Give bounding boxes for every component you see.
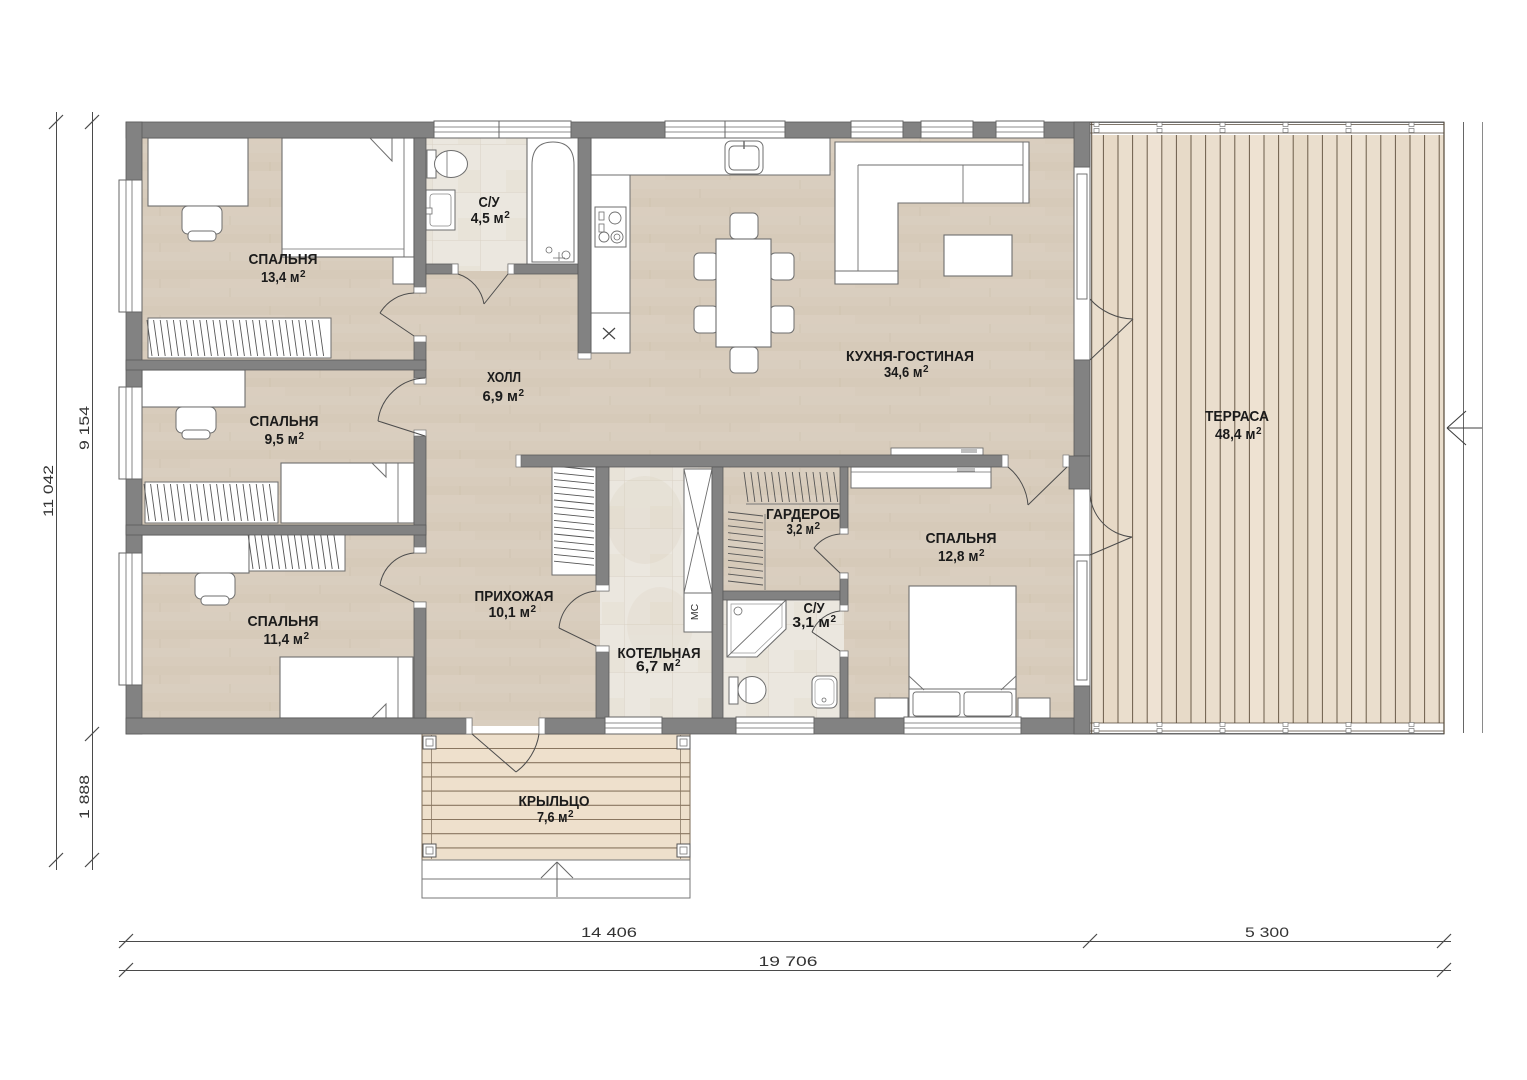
svg-text:9 154: 9 154 <box>76 406 92 450</box>
svg-text:10,1 м: 10,1 м <box>488 604 530 621</box>
svg-text:9,5 м: 9,5 м <box>264 431 298 448</box>
svg-text:2: 2 <box>815 521 821 532</box>
svg-text:СПАЛЬНЯ: СПАЛЬНЯ <box>926 530 997 547</box>
svg-text:4,5 м: 4,5 м <box>471 210 504 227</box>
svg-text:48,4 м: 48,4 м <box>1215 426 1256 443</box>
svg-text:2: 2 <box>304 631 310 642</box>
svg-text:2: 2 <box>831 614 837 625</box>
svg-text:2: 2 <box>531 604 537 615</box>
svg-text:7,6 м: 7,6 м <box>537 809 568 826</box>
svg-text:2: 2 <box>299 431 305 442</box>
svg-text:ТЕРРАСА: ТЕРРАСА <box>1205 408 1269 425</box>
svg-text:2: 2 <box>519 388 525 399</box>
svg-text:2: 2 <box>568 809 574 820</box>
svg-text:СПАЛЬНЯ: СПАЛЬНЯ <box>249 251 318 268</box>
svg-text:2: 2 <box>1256 426 1262 437</box>
svg-text:3,2 м: 3,2 м <box>786 521 814 538</box>
svg-text:2: 2 <box>675 658 681 669</box>
svg-text:3,1 м: 3,1 м <box>792 614 830 631</box>
svg-text:2: 2 <box>923 364 929 375</box>
svg-text:19 706: 19 706 <box>759 953 818 969</box>
svg-text:ПРИХОЖАЯ: ПРИХОЖАЯ <box>475 588 554 605</box>
svg-text:СПАЛЬНЯ: СПАЛЬНЯ <box>248 613 319 630</box>
svg-text:11 042: 11 042 <box>40 465 56 517</box>
svg-text:1 888: 1 888 <box>76 775 92 819</box>
svg-text:6,7 м: 6,7 м <box>636 658 675 675</box>
svg-text:6,9 м: 6,9 м <box>482 388 518 405</box>
svg-text:2: 2 <box>979 548 985 559</box>
svg-text:КРЫЛЬЦО: КРЫЛЬЦО <box>519 793 590 810</box>
svg-text:12,8 м: 12,8 м <box>938 548 979 565</box>
svg-text:КУХНЯ-ГОСТИНАЯ: КУХНЯ-ГОСТИНАЯ <box>846 348 974 365</box>
svg-text:13,4 м: 13,4 м <box>261 269 300 286</box>
svg-text:11,4 м: 11,4 м <box>263 631 303 648</box>
svg-text:МС: МС <box>689 603 701 620</box>
svg-text:2: 2 <box>504 210 510 221</box>
svg-text:СПАЛЬНЯ: СПАЛЬНЯ <box>250 413 319 430</box>
svg-text:ХОЛЛ: ХОЛЛ <box>487 369 521 386</box>
svg-text:2: 2 <box>300 269 306 280</box>
svg-text:С/У: С/У <box>479 194 501 211</box>
svg-text:34,6 м: 34,6 м <box>884 364 923 381</box>
svg-text:14 406: 14 406 <box>581 924 637 940</box>
svg-text:5 300: 5 300 <box>1245 924 1289 940</box>
